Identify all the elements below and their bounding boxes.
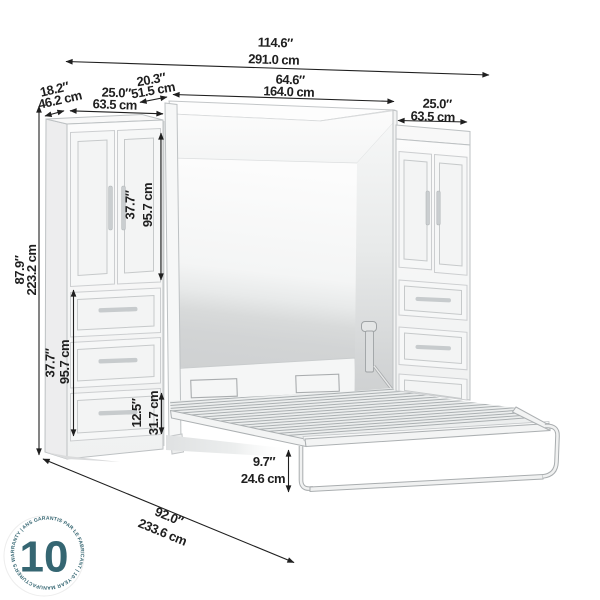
svg-text:31.7 cm: 31.7 cm [146, 391, 161, 435]
svg-text:291.0 cm: 291.0 cm [248, 51, 299, 68]
svg-text:63.5 cm: 63.5 cm [410, 108, 455, 125]
svg-text:95.7 cm: 95.7 cm [140, 183, 155, 227]
svg-text:95.7 cm: 95.7 cm [57, 340, 72, 384]
svg-text:9.7″: 9.7″ [253, 454, 276, 469]
svg-text:24.6 cm: 24.6 cm [241, 471, 285, 486]
svg-text:114.6″: 114.6″ [258, 34, 294, 50]
svg-text:37.7″: 37.7″ [123, 190, 138, 219]
svg-text:63.5 cm: 63.5 cm [92, 96, 137, 113]
svg-text:10: 10 [20, 533, 69, 582]
svg-text:164.0 cm: 164.0 cm [263, 83, 314, 100]
svg-text:37.7″: 37.7″ [43, 348, 58, 377]
svg-text:223.2 cm: 223.2 cm [24, 245, 39, 296]
svg-text:12.5″: 12.5″ [129, 398, 144, 427]
